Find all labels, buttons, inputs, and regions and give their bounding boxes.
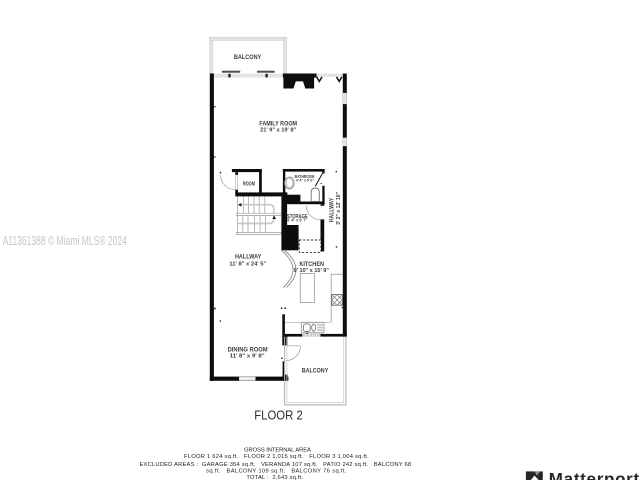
svg-text:11' 8" x 9' 8": 11' 8" x 9' 8" (230, 354, 265, 360)
svg-text:EXCLUDED AREAS : GARAGE 354 s: EXCLUDED AREAS : GARAGE 354 sq.ft. VERAN… (139, 462, 411, 468)
svg-text:FLOOR 1 624 sq.ft. FLOOR 2 1: FLOOR 1 624 sq.ft. FLOOR 2 1,015 sq.ft. … (184, 454, 369, 460)
svg-text:sq.ft. BALCONY 109 sq.ft.: sq.ft. BALCONY 109 sq.ft. BALCONY 76 sq.… (206, 469, 347, 475)
svg-text:HALLWAY: HALLWAY (329, 197, 336, 222)
svg-text:FAMILY ROOM: FAMILY ROOM (259, 120, 297, 127)
svg-text:BALCONY: BALCONY (302, 369, 329, 375)
svg-text:3' 2" x 12' 10": 3' 2" x 12' 10" (336, 192, 342, 225)
svg-text:TOTAL : 2,643 sq.ft.: TOTAL : 2,643 sq.ft. (246, 475, 303, 480)
svg-text:GROSS INTERNAL AREA: GROSS INTERNAL AREA (244, 448, 311, 454)
svg-text:A11361388 © Miami MLS® 2024: A11361388 © Miami MLS® 2024 (3, 234, 127, 248)
svg-text:HALLWAY: HALLWAY (235, 254, 262, 261)
svg-text:FLOOR 2: FLOOR 2 (254, 407, 303, 422)
svg-text:4' 4" x 5' 6": 4' 4" x 5' 6" (296, 177, 314, 182)
svg-text:21' 9" x 19' 8": 21' 9" x 19' 8" (260, 127, 296, 133)
svg-text:Matterport: Matterport (549, 469, 640, 480)
svg-text:11' 8" x 24' 5": 11' 8" x 24' 5" (229, 261, 266, 267)
svg-text:BALCONY: BALCONY (234, 54, 262, 61)
svg-text:6' 4" x 5' 7": 6' 4" x 5' 7" (287, 218, 307, 223)
svg-text:ROOM: ROOM (243, 182, 255, 188)
